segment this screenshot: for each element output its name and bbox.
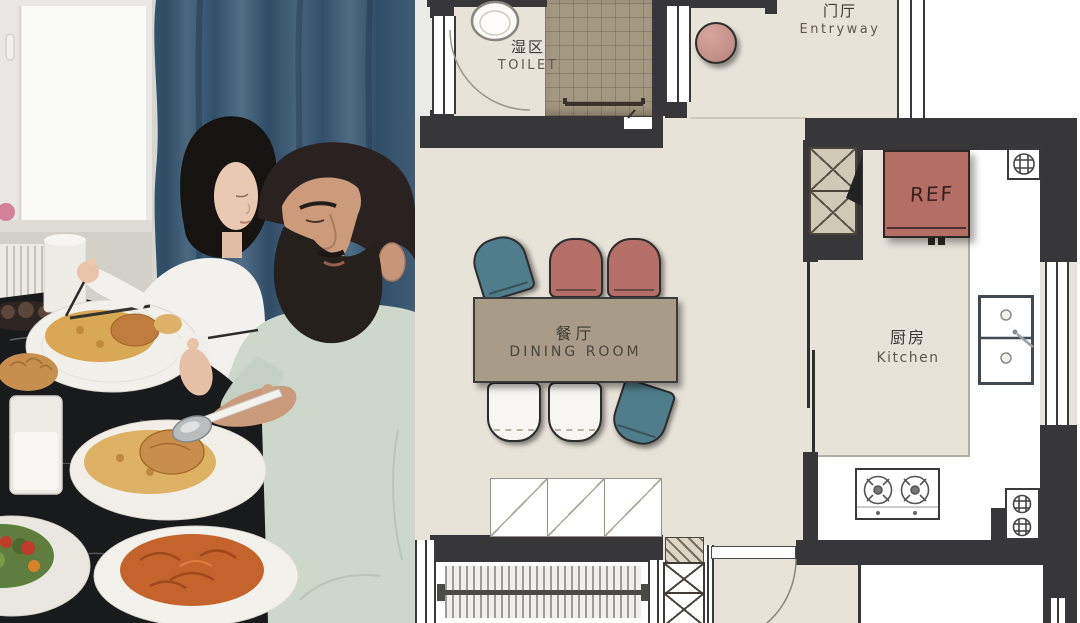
- door-leaf: [711, 546, 796, 559]
- ear: [379, 243, 405, 281]
- floor-threshold: [690, 117, 805, 119]
- small-window: [1049, 598, 1067, 623]
- kitchen-left-wall: [803, 452, 818, 540]
- collage: 餐厅 DINING ROOM REF: [0, 0, 1080, 623]
- entry-glazing: [665, 6, 691, 102]
- counter-edge: [818, 455, 970, 457]
- hatched-column: [665, 537, 704, 563]
- kitchen-label: 厨房 Kitchen: [853, 328, 963, 367]
- window-cap: [1043, 425, 1067, 431]
- dining-chair-pink: [607, 238, 661, 298]
- milk-glass: [10, 396, 62, 494]
- dining-table: 餐厅 DINING ROOM: [473, 297, 678, 383]
- dining-label-en: DINING ROOM: [509, 344, 641, 360]
- wall-cap: [665, 100, 687, 118]
- toilet-fixture: [472, 2, 518, 40]
- plate-rice-2: [70, 420, 266, 520]
- photo-couple-eating: [0, 0, 415, 623]
- door-right-wall: [796, 540, 862, 565]
- kitchen-label-zh: 厨房: [853, 328, 963, 349]
- sliding-door-track: [812, 350, 815, 452]
- photo-art: [0, 0, 415, 623]
- floor-plan: 餐厅 DINING ROOM REF: [415, 0, 1080, 623]
- dining-chair-teal: [467, 230, 536, 303]
- toilet-label-zh: 湿区: [473, 38, 583, 58]
- dining-label-zh: 餐厅: [555, 320, 595, 344]
- entryway-label-en: Entryway: [785, 22, 895, 39]
- entry-right-wall-glazing: [897, 0, 925, 118]
- toilet-label-en: TOILET: [473, 58, 583, 75]
- dining-chair-teal: [607, 377, 677, 451]
- entryway-label: 门厅 Entryway: [785, 2, 895, 38]
- window-mullion: [415, 540, 436, 623]
- outside-area: [923, 0, 1080, 120]
- radiator-bracket: [641, 584, 649, 601]
- vent-box: [1005, 488, 1040, 540]
- dining-chair-white: [548, 382, 602, 442]
- dining-chair-pink: [549, 238, 603, 298]
- door-opening-marker: [623, 116, 653, 130]
- shower-right-wall: [652, 0, 665, 116]
- dining-bottom-wall: [430, 535, 663, 562]
- stove: [855, 468, 940, 520]
- refrigerator: REF: [883, 150, 970, 238]
- plate-pasta: [94, 526, 298, 623]
- radiator-bar: [439, 590, 647, 595]
- cabinet: [547, 478, 605, 537]
- duct-box: [663, 562, 705, 596]
- vent-box: [1007, 148, 1041, 180]
- entry-door-block: [765, 0, 777, 14]
- room-divider: [858, 565, 861, 623]
- entry-top-wall: [687, 0, 769, 8]
- fridge-foot: [938, 238, 945, 245]
- shaft-box: [809, 190, 857, 235]
- toilet-window: [432, 16, 456, 114]
- refrigerator-label: REF: [910, 181, 955, 207]
- cabinet: [490, 478, 548, 537]
- toilet-label: 湿区 TOILET: [473, 38, 583, 74]
- kitchen-window: [1045, 262, 1069, 425]
- kitchen-label-en: Kitchen: [853, 349, 963, 367]
- entryway-label-zh: 门厅: [785, 2, 895, 22]
- dining-chair-white: [487, 382, 541, 442]
- door-swing-arc: [767, 559, 796, 623]
- duct-box: [663, 592, 705, 623]
- bread: [0, 353, 58, 391]
- kitchen-sink: [978, 295, 1034, 385]
- kitchen-left-wall: [803, 232, 818, 262]
- radiator-bracket: [437, 584, 445, 601]
- window-cap: [1043, 256, 1067, 262]
- cabinet: [604, 478, 662, 537]
- shaft-box: [809, 147, 857, 192]
- sliding-door-track: [807, 262, 810, 408]
- fridge-foot: [928, 238, 935, 245]
- room-below-white: [861, 565, 1043, 623]
- kitchen-right-wall: [1040, 118, 1077, 262]
- entry-stool: [695, 22, 737, 64]
